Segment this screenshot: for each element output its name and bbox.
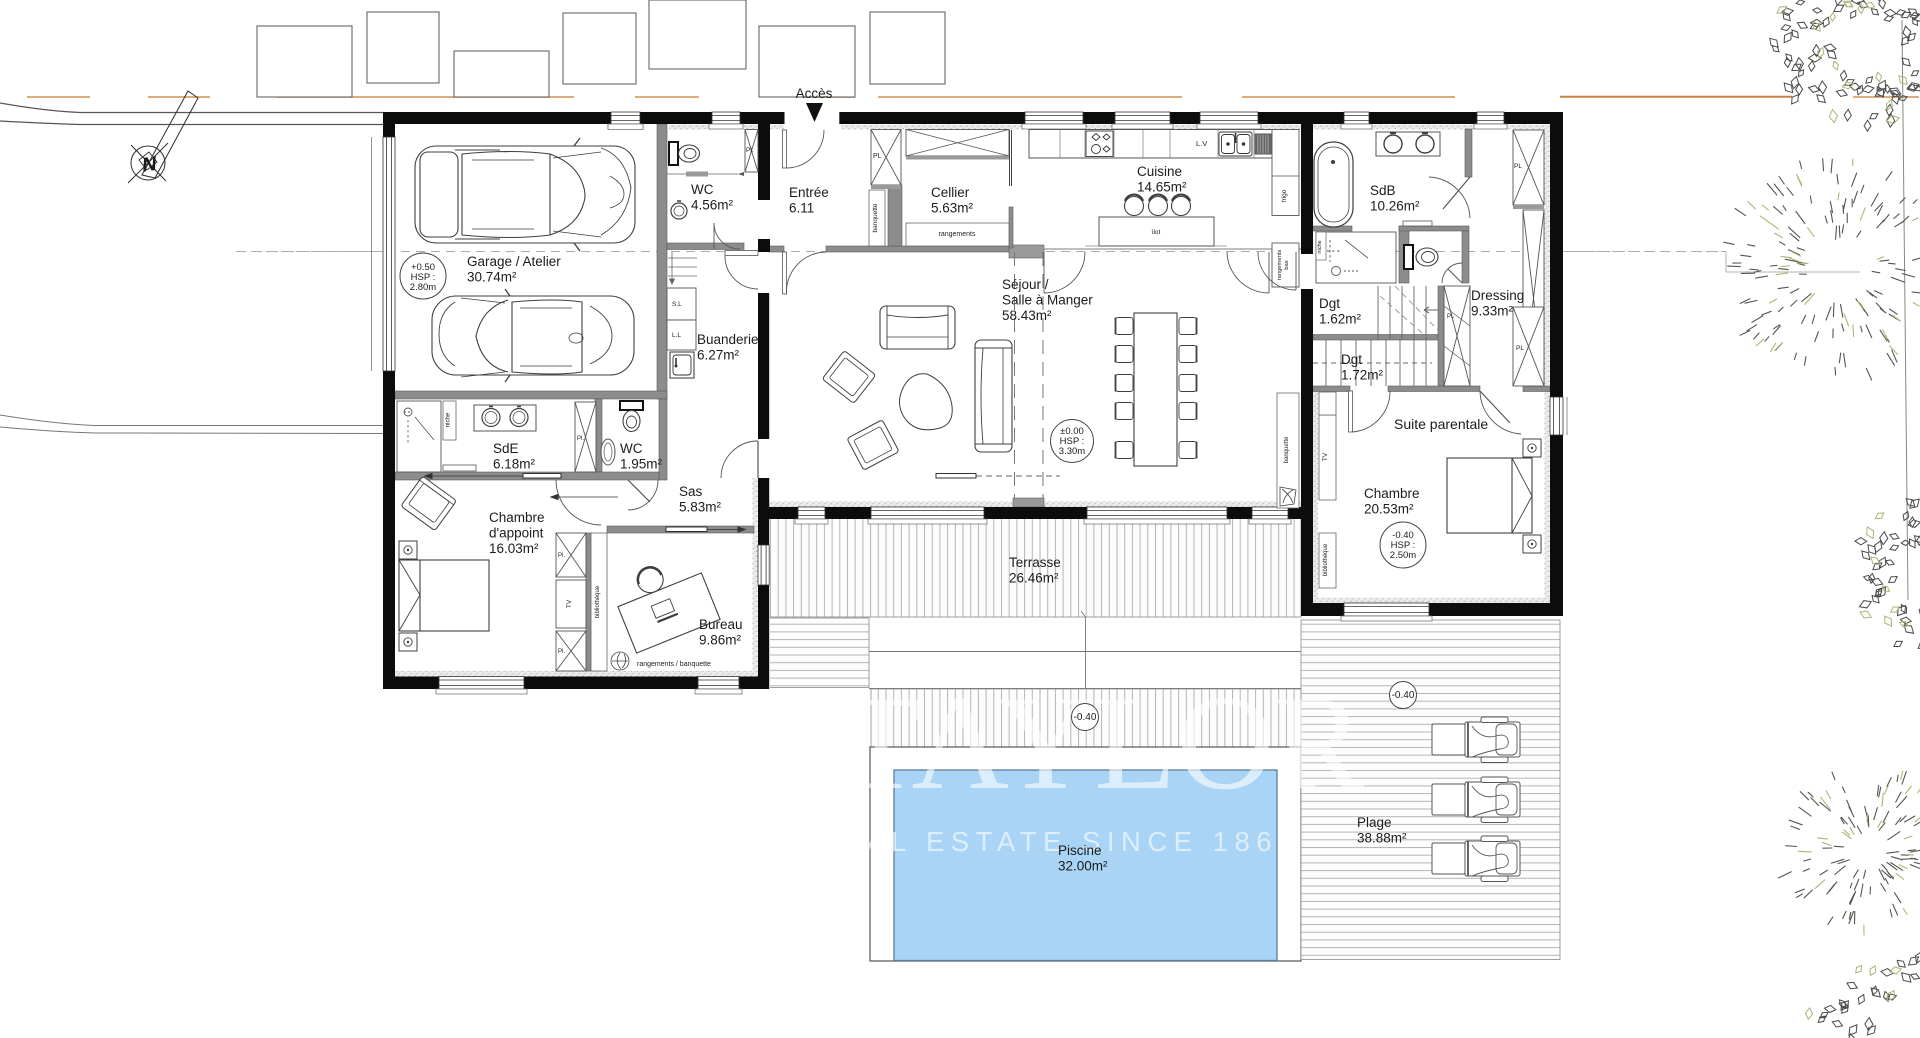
svg-text:6.11: 6.11	[789, 201, 814, 216]
svg-text:Plage: Plage	[1357, 815, 1392, 830]
svg-text:SdB: SdB	[1370, 183, 1396, 198]
svg-text:PL: PL	[873, 153, 882, 160]
svg-text:20.53m²: 20.53m²	[1364, 502, 1414, 517]
svg-text:1.95m²: 1.95m²	[620, 457, 663, 472]
svg-text:Garage / Atelier: Garage / Atelier	[467, 254, 561, 269]
svg-text:TV: TV	[566, 599, 573, 608]
svg-text:Terrasse: Terrasse	[1009, 555, 1061, 570]
svg-text:TV: TV	[1322, 452, 1329, 461]
svg-text:S.L: S.L	[672, 301, 682, 308]
svg-text:Sas: Sas	[679, 484, 703, 499]
svg-text:Pl.: Pl.	[746, 147, 754, 154]
svg-text:Dgt: Dgt	[1319, 296, 1340, 311]
svg-text:banquette: banquette	[1284, 436, 1290, 463]
svg-text:Séjour /: Séjour /	[1002, 277, 1049, 292]
svg-text:WC: WC	[691, 182, 714, 197]
svg-text:Dgt: Dgt	[1341, 352, 1362, 367]
svg-text:Pl.: Pl.	[577, 436, 584, 442]
svg-text:bibliothèque: bibliothèque	[595, 585, 601, 618]
svg-text:Entrée: Entrée	[789, 185, 829, 200]
svg-text:32.00m²: 32.00m²	[1058, 859, 1108, 874]
svg-text:Dressing: Dressing	[1471, 288, 1524, 303]
svg-text:Salle à Manger: Salle à Manger	[1002, 293, 1093, 308]
svg-text:Accès: Accès	[796, 86, 833, 101]
svg-text:Suite parentale: Suite parentale	[1394, 416, 1488, 432]
svg-text:2.50m: 2.50m	[1390, 550, 1416, 561]
svg-text:9.86m²: 9.86m²	[699, 633, 742, 648]
svg-text:rangements: rangements	[939, 231, 976, 238]
svg-text:niche: niche	[446, 412, 452, 427]
svg-text:26.46m²: 26.46m²	[1009, 571, 1059, 586]
svg-text:30.74m²: 30.74m²	[467, 270, 517, 285]
svg-text:L.L: L.L	[672, 332, 681, 339]
svg-text:Chambre: Chambre	[1364, 486, 1420, 501]
svg-text:3.30m: 3.30m	[1059, 446, 1085, 457]
svg-text:1.62m²: 1.62m²	[1319, 312, 1362, 327]
svg-text:bas: bas	[1284, 260, 1290, 269]
svg-text:58.43m²: 58.43m²	[1002, 308, 1052, 323]
svg-text:Piscine: Piscine	[1058, 843, 1102, 858]
svg-text:PL: PL	[1516, 345, 1524, 352]
svg-text:Pl.: Pl.	[558, 553, 565, 559]
svg-text:16.03m²: 16.03m²	[489, 541, 539, 556]
svg-text:Buanderie: Buanderie	[697, 332, 759, 347]
svg-text:Chambre: Chambre	[489, 510, 545, 525]
svg-text:6.18m²: 6.18m²	[493, 457, 536, 472]
svg-text:L.V: L.V	[1196, 139, 1207, 148]
svg-text:rangements: rangements	[1277, 250, 1283, 281]
svg-text:9.33m²: 9.33m²	[1471, 304, 1514, 319]
svg-text:Bureau: Bureau	[699, 617, 743, 632]
svg-text:bibliothèque: bibliothèque	[1323, 543, 1329, 576]
svg-text:-0.40: -0.40	[1392, 690, 1415, 701]
svg-text:2.80m: 2.80m	[410, 282, 436, 293]
svg-text:Cellier: Cellier	[931, 185, 970, 200]
svg-text:5.83m²: 5.83m²	[679, 500, 722, 515]
svg-text:1.72m²: 1.72m²	[1341, 368, 1384, 383]
svg-text:frigo: frigo	[1281, 189, 1288, 202]
svg-text:38.88m²: 38.88m²	[1357, 831, 1407, 846]
svg-text:banquette: banquette	[872, 203, 879, 232]
svg-text:îlot: îlot	[1151, 229, 1161, 236]
svg-text:PL: PL	[1514, 163, 1522, 170]
svg-text:Cuisine: Cuisine	[1137, 164, 1182, 179]
svg-text:niche: niche	[1317, 240, 1323, 253]
svg-text:14.65m²: 14.65m²	[1137, 180, 1187, 195]
svg-text:10.26m²: 10.26m²	[1370, 199, 1420, 214]
svg-text:TAYLOR: TAYLOR	[840, 669, 1364, 818]
svg-text:d'appoint: d'appoint	[489, 526, 544, 541]
svg-text:-0.40: -0.40	[1074, 712, 1097, 723]
svg-text:WC: WC	[620, 441, 643, 456]
svg-text:Pl.: Pl.	[558, 649, 565, 655]
svg-text:PL: PL	[1447, 314, 1455, 320]
svg-text:5.63m²: 5.63m²	[931, 201, 974, 216]
svg-text:rangements / banquette: rangements / banquette	[637, 661, 711, 668]
svg-text:4.56m²: 4.56m²	[691, 198, 734, 213]
svg-text:6.27m²: 6.27m²	[697, 348, 740, 363]
svg-text:SdE: SdE	[493, 441, 519, 456]
